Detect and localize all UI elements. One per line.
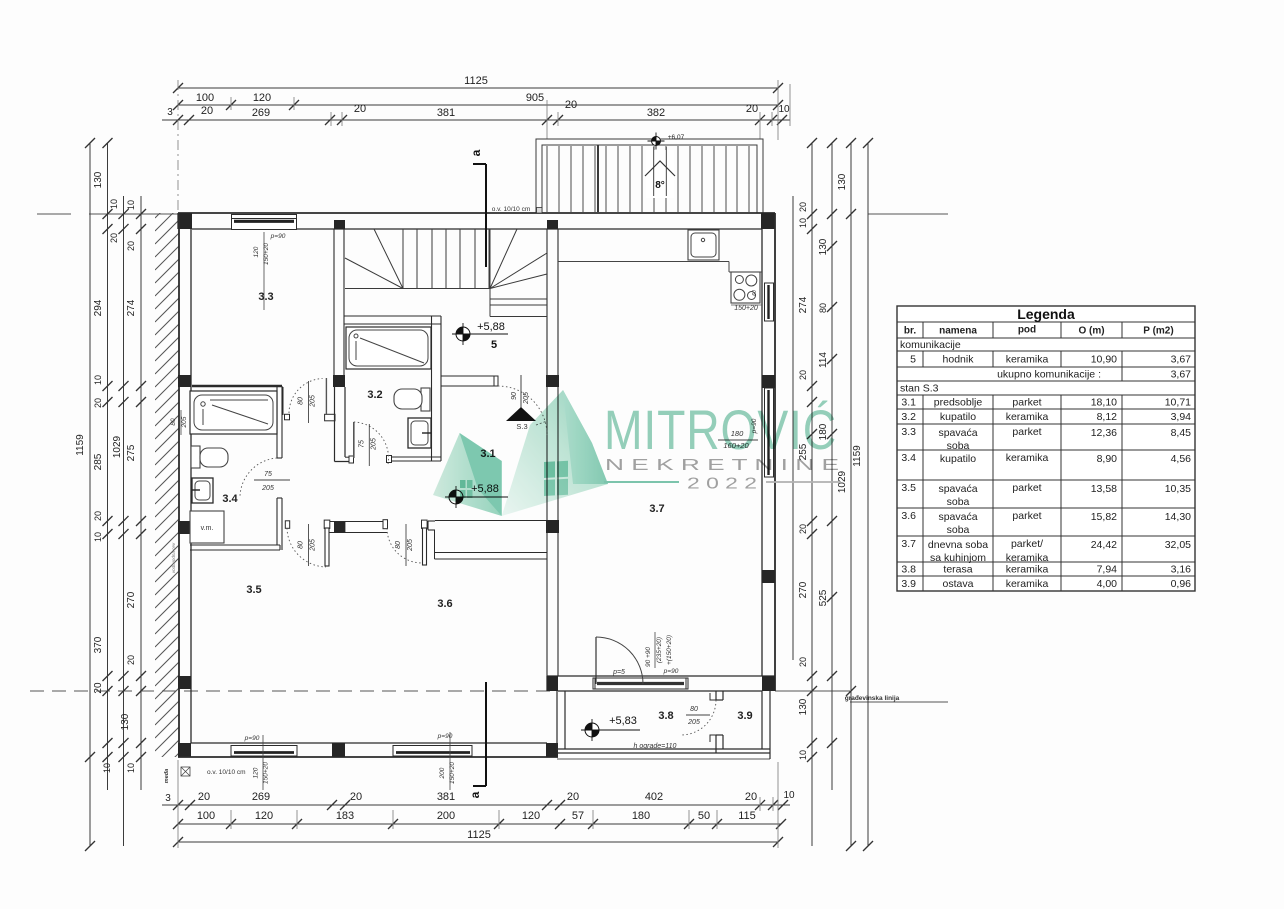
svg-text:+5,83: +5,83 — [609, 715, 637, 727]
svg-text:10: 10 — [798, 218, 808, 228]
svg-text:3.6: 3.6 — [437, 598, 452, 610]
svg-text:294: 294 — [93, 299, 104, 316]
svg-text:20: 20 — [798, 657, 808, 667]
svg-text:120: 120 — [253, 767, 260, 778]
svg-text:keramika: keramika — [1006, 578, 1049, 590]
svg-text:20: 20 — [109, 233, 119, 243]
svg-text:20: 20 — [798, 202, 808, 212]
svg-text:0,96: 0,96 — [1171, 578, 1192, 590]
svg-text:12,36: 12,36 — [1091, 427, 1117, 439]
svg-text:370: 370 — [93, 636, 104, 653]
svg-text:80: 80 — [298, 541, 305, 549]
svg-text:5: 5 — [491, 339, 497, 351]
svg-text:p=5: p=5 — [612, 669, 625, 676]
svg-text:građevinska linija: građevinska linija — [845, 695, 900, 702]
svg-text:274: 274 — [798, 296, 809, 313]
svg-text:80: 80 — [298, 397, 305, 405]
svg-text:8°: 8° — [655, 180, 665, 191]
svg-text:O (m): O (m) — [1078, 326, 1104, 337]
svg-text:275: 275 — [126, 444, 137, 461]
svg-text:150+20: 150+20 — [263, 762, 270, 784]
svg-text:3.2: 3.2 — [901, 411, 916, 423]
svg-text:20: 20 — [354, 103, 366, 115]
svg-text:3: 3 — [167, 107, 173, 118]
svg-text:parket: parket — [1012, 426, 1041, 438]
svg-text:285: 285 — [93, 453, 104, 470]
svg-text:80: 80 — [395, 541, 402, 549]
svg-text:5: 5 — [910, 354, 916, 366]
svg-text:205: 205 — [310, 395, 317, 408]
svg-text:205: 205 — [687, 719, 700, 726]
svg-text:114: 114 — [818, 352, 829, 368]
svg-text:8,45: 8,45 — [1171, 427, 1192, 439]
svg-text:S.3: S.3 — [516, 422, 527, 431]
svg-text:3,94: 3,94 — [1171, 411, 1192, 423]
svg-text:10: 10 — [93, 532, 103, 542]
svg-text:50: 50 — [698, 810, 710, 822]
svg-text:10: 10 — [93, 375, 103, 385]
svg-text:3.4: 3.4 — [901, 452, 916, 464]
svg-text:10,71: 10,71 — [1165, 397, 1191, 409]
svg-text:spavaća: spavaća — [938, 511, 977, 523]
svg-text:183: 183 — [336, 810, 354, 822]
svg-text:parket: parket — [1012, 397, 1041, 409]
svg-text:MITROVIĆ: MITROVIĆ — [604, 398, 837, 461]
svg-text:kupatilo: kupatilo — [940, 453, 976, 465]
svg-text:keramika: keramika — [1006, 452, 1049, 464]
svg-text:o.v. 10/10 cm: o.v. 10/10 cm — [207, 769, 246, 776]
svg-text:402: 402 — [645, 791, 663, 803]
svg-text:120: 120 — [253, 92, 271, 104]
svg-text:20: 20 — [565, 99, 577, 111]
svg-text:10: 10 — [778, 104, 790, 115]
svg-text:h ograde=110: h ograde=110 — [634, 743, 677, 750]
svg-text:100: 100 — [197, 810, 215, 822]
svg-text:v.m.: v.m. — [201, 525, 214, 532]
svg-text:381: 381 — [437, 107, 455, 119]
svg-text:205: 205 — [181, 416, 188, 428]
svg-text:dnevna soba: dnevna soba — [928, 539, 988, 551]
svg-text:spavaća: spavaća — [938, 483, 977, 495]
svg-text:1159: 1159 — [852, 445, 863, 467]
svg-text:57: 57 — [572, 810, 584, 822]
svg-text:pod: pod — [1018, 325, 1036, 336]
svg-text:10: 10 — [783, 790, 795, 801]
svg-text:3.3: 3.3 — [901, 426, 916, 438]
svg-text:20: 20 — [745, 791, 757, 803]
svg-text:20: 20 — [198, 791, 210, 803]
svg-text:130: 130 — [798, 698, 809, 715]
svg-text:60: 60 — [752, 290, 758, 296]
svg-text:14,30: 14,30 — [1165, 511, 1191, 523]
svg-text:3.4: 3.4 — [222, 493, 238, 505]
svg-text:381: 381 — [437, 791, 455, 803]
svg-text:180: 180 — [632, 810, 650, 822]
svg-text:20: 20 — [350, 791, 362, 803]
svg-text:120: 120 — [253, 246, 260, 257]
svg-text:a: a — [468, 791, 482, 798]
svg-text:Legenda: Legenda — [1017, 306, 1075, 322]
svg-text:namena: namena — [939, 326, 977, 337]
svg-text:205: 205 — [371, 438, 378, 451]
svg-text:10: 10 — [126, 763, 136, 773]
svg-text:274: 274 — [126, 299, 137, 316]
svg-text:8,12: 8,12 — [1097, 411, 1118, 423]
svg-text:269: 269 — [252, 791, 270, 803]
svg-text:10,90: 10,90 — [1091, 354, 1117, 366]
svg-text:20: 20 — [93, 511, 103, 521]
svg-text:3.5: 3.5 — [246, 584, 261, 596]
svg-text:382: 382 — [647, 107, 665, 119]
svg-text:10: 10 — [126, 200, 136, 210]
svg-text:3.3: 3.3 — [258, 291, 273, 303]
svg-text:75: 75 — [359, 440, 366, 448]
svg-text:32,05: 32,05 — [1165, 539, 1191, 551]
svg-text:keramika: keramika — [1006, 564, 1049, 576]
svg-text:100: 100 — [196, 92, 214, 104]
svg-text:130: 130 — [818, 238, 829, 255]
svg-text:+5,88: +5,88 — [477, 321, 505, 333]
svg-text:p=90: p=90 — [270, 233, 286, 240]
svg-text:(235+20): (235+20) — [656, 637, 663, 663]
svg-text:150+20: 150+20 — [449, 762, 456, 784]
svg-text:205: 205 — [310, 539, 317, 552]
svg-text:vodovodna cev: vodovodna cev — [171, 542, 176, 573]
svg-text:270: 270 — [126, 591, 137, 608]
svg-text:2 0 2 2: 2 0 2 2 — [687, 476, 757, 493]
svg-text:905: 905 — [526, 92, 544, 104]
svg-text:10: 10 — [798, 750, 808, 760]
svg-text:20: 20 — [798, 370, 808, 380]
svg-text:spavaća: spavaća — [938, 427, 977, 439]
svg-text:3.8: 3.8 — [658, 710, 673, 722]
svg-text:p=90: p=90 — [244, 735, 260, 742]
svg-text:115: 115 — [738, 810, 756, 822]
svg-text:3.2: 3.2 — [367, 389, 382, 401]
svg-text:205: 205 — [523, 392, 530, 405]
svg-text:keramika: keramika — [1006, 552, 1049, 564]
svg-text:130: 130 — [93, 171, 104, 188]
svg-text:10: 10 — [102, 763, 112, 773]
svg-text:205: 205 — [261, 485, 274, 492]
svg-text:br.: br. — [904, 326, 916, 337]
svg-text:80: 80 — [170, 418, 177, 426]
svg-text:3.9: 3.9 — [901, 578, 916, 590]
svg-text:N E K R E T N I N E: N E K R E T N I N E — [605, 457, 839, 474]
svg-text:3,67: 3,67 — [1171, 354, 1192, 366]
svg-text:4,00: 4,00 — [1097, 578, 1118, 590]
svg-text:120: 120 — [522, 810, 540, 822]
svg-text:200: 200 — [437, 810, 455, 822]
svg-text:3.8: 3.8 — [901, 564, 916, 576]
svg-text:269: 269 — [252, 107, 270, 119]
svg-text:P (m2): P (m2) — [1143, 326, 1173, 337]
svg-text:200: 200 — [439, 767, 446, 779]
svg-text:stan S.3: stan S.3 — [900, 383, 939, 395]
svg-text:soba: soba — [947, 524, 970, 536]
svg-text:20: 20 — [798, 524, 808, 534]
svg-text:8,90: 8,90 — [1097, 453, 1118, 465]
svg-text:120: 120 — [255, 810, 273, 822]
svg-text:90: 90 — [511, 392, 518, 400]
svg-text:terasa: terasa — [943, 564, 972, 576]
svg-text:20: 20 — [93, 398, 103, 408]
svg-text:komunikacije: komunikacije — [900, 339, 961, 351]
svg-text:3.9: 3.9 — [737, 710, 752, 722]
svg-text:hodnik: hodnik — [943, 354, 975, 366]
svg-text:150+20: 150+20 — [734, 305, 758, 312]
svg-text:kupatilo: kupatilo — [940, 411, 976, 423]
svg-text:keramika: keramika — [1006, 354, 1049, 366]
svg-text:130: 130 — [120, 713, 131, 730]
svg-text:24,42: 24,42 — [1091, 539, 1117, 551]
svg-text:18,10: 18,10 — [1091, 397, 1117, 409]
svg-text:1029: 1029 — [112, 435, 123, 458]
svg-text:1159: 1159 — [75, 434, 86, 456]
svg-text:međa: međa — [164, 769, 170, 783]
svg-text:3.1: 3.1 — [901, 397, 916, 409]
svg-text:1125: 1125 — [467, 829, 491, 841]
svg-text:130: 130 — [837, 173, 848, 190]
svg-text:150+20: 150+20 — [263, 243, 270, 265]
svg-text:20: 20 — [746, 103, 758, 115]
svg-text:3.6: 3.6 — [901, 510, 916, 522]
svg-text:a: a — [469, 149, 483, 156]
svg-text:1125: 1125 — [464, 75, 488, 87]
svg-text:3,16: 3,16 — [1171, 564, 1192, 576]
svg-text:10: 10 — [109, 199, 119, 209]
svg-text:20: 20 — [126, 241, 136, 251]
svg-text:3: 3 — [165, 793, 171, 804]
svg-text:20: 20 — [201, 105, 213, 117]
svg-text:90 +90: 90 +90 — [645, 647, 652, 667]
svg-text:75: 75 — [264, 471, 272, 478]
svg-text:13,58: 13,58 — [1091, 483, 1117, 495]
svg-text:205: 205 — [407, 539, 414, 552]
svg-text:3.7: 3.7 — [901, 538, 916, 550]
svg-text:soba: soba — [947, 496, 970, 508]
svg-text:ukupno komunikacije :: ukupno komunikacije : — [997, 369, 1101, 381]
svg-text:7,94: 7,94 — [1097, 564, 1118, 576]
svg-text:+6,07: +6,07 — [668, 134, 685, 141]
svg-text:80: 80 — [690, 706, 698, 713]
svg-text:3.7: 3.7 — [649, 503, 664, 515]
svg-text:parket: parket — [1012, 510, 1041, 522]
svg-text:80: 80 — [818, 303, 828, 313]
svg-text:parket/: parket/ — [1011, 538, 1043, 550]
svg-text:soba: soba — [947, 440, 970, 452]
svg-text:parket: parket — [1012, 482, 1041, 494]
svg-text:o.v. 10/10 cm: o.v. 10/10 cm — [492, 206, 531, 213]
svg-text:525: 525 — [818, 589, 829, 606]
svg-text:ostava: ostava — [943, 578, 974, 590]
svg-text:20: 20 — [126, 655, 136, 665]
svg-text:15,82: 15,82 — [1091, 511, 1117, 523]
svg-text:+(150+20): +(150+20) — [666, 635, 673, 665]
svg-text:10,35: 10,35 — [1165, 483, 1191, 495]
svg-text:predsoblje: predsoblje — [934, 397, 983, 409]
svg-text:20: 20 — [93, 682, 104, 694]
svg-text:3,67: 3,67 — [1171, 369, 1192, 381]
svg-text:3.5: 3.5 — [901, 482, 916, 494]
svg-text:p=90: p=90 — [663, 668, 679, 675]
svg-text:270: 270 — [798, 581, 809, 598]
svg-text:20: 20 — [567, 791, 579, 803]
svg-text:4,56: 4,56 — [1171, 453, 1192, 465]
svg-text:sa kuhinjom: sa kuhinjom — [930, 552, 986, 564]
svg-text:keramika: keramika — [1006, 411, 1049, 423]
